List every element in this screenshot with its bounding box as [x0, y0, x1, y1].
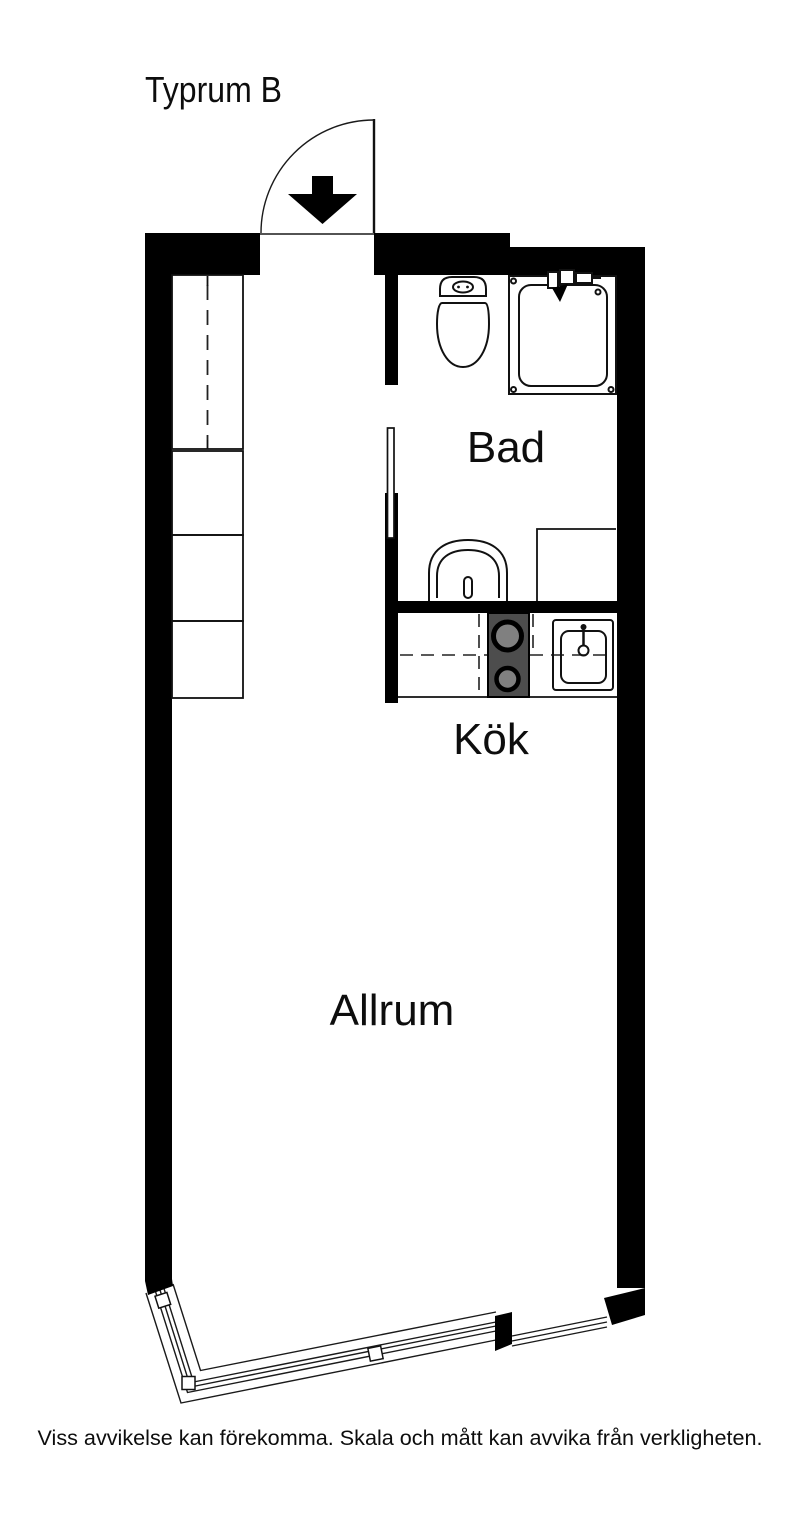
toilet: [437, 277, 489, 367]
room-label-bad: Bad: [467, 423, 545, 472]
walls: [145, 233, 645, 1351]
floor-plan-drawing: Typrum B Bad Kök Allrum Viss avvikelse k…: [0, 0, 800, 1523]
window-pier: [604, 1288, 645, 1325]
wardrobe: [172, 451, 243, 535]
wardrobe: [172, 621, 243, 698]
burner: [494, 622, 522, 650]
disclaimer-text: Viss avvikelse kan förekomma. Skala och …: [38, 1426, 763, 1450]
bathroom-wall: [385, 275, 398, 385]
window-mullion: [182, 1377, 195, 1390]
room-label-allrum: Allrum: [330, 986, 455, 1035]
window-mullion: [155, 1292, 171, 1308]
page-title: Typrum B: [145, 69, 282, 110]
floorplan-page: Typrum B Bad Kök Allrum Viss avvikelse k…: [0, 0, 800, 1523]
bathroom-door-leaf: [388, 428, 395, 538]
stove: [488, 613, 529, 697]
window-mullion: [368, 1346, 383, 1361]
kitchen: [398, 613, 617, 697]
shower: [509, 270, 616, 394]
wardrobe: [172, 535, 243, 621]
bathroom-bench: [537, 529, 616, 601]
wardrobe-column: [172, 275, 243, 698]
window-pier: [495, 1312, 512, 1351]
room-label-kok: Kök: [453, 715, 530, 764]
washbasin: [429, 540, 507, 601]
entry-arrow-icon: [288, 176, 357, 224]
window-band: [146, 1284, 607, 1403]
bathroom-wall: [385, 601, 645, 613]
burner: [497, 668, 519, 690]
